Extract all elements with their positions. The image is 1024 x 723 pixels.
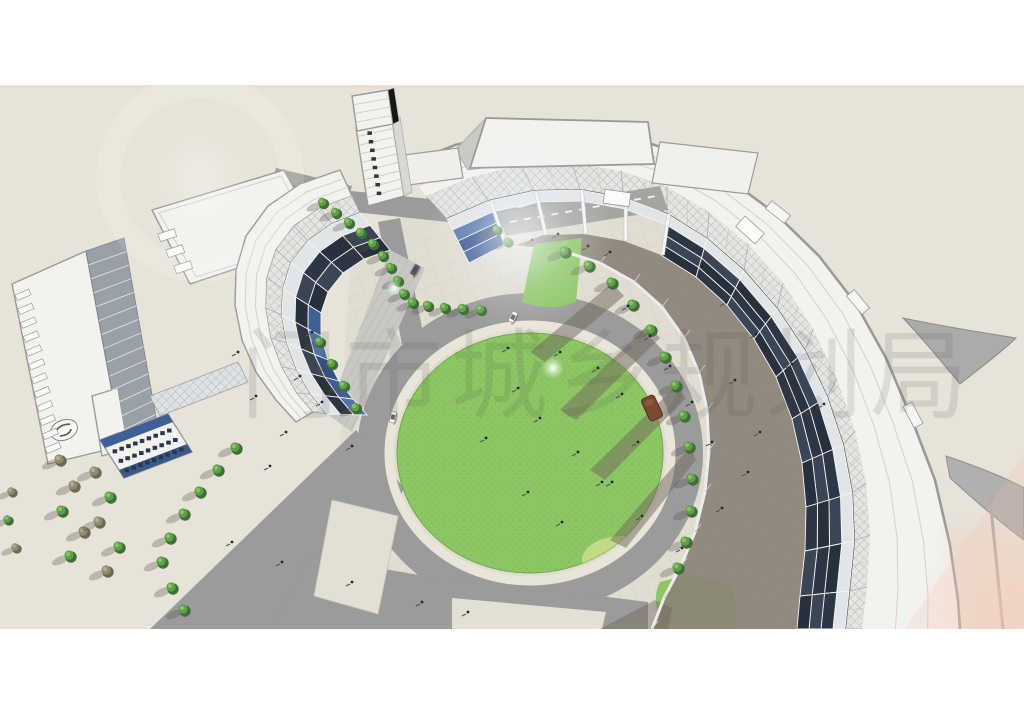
wing-window <box>113 449 118 453</box>
wing-window <box>153 446 158 450</box>
wing-window <box>125 468 130 472</box>
person-figure <box>577 451 580 454</box>
facade-window-cell <box>817 500 829 549</box>
wing-window <box>167 429 172 433</box>
tower-window <box>375 183 380 187</box>
wing-window <box>159 443 164 447</box>
wing-window <box>119 447 124 451</box>
tower-window <box>367 131 372 135</box>
tree-highlight <box>387 264 391 268</box>
tree-highlight <box>424 302 428 306</box>
aerial-render-canvas: 门市城乡规划局 <box>0 0 1024 723</box>
person-figure <box>467 611 470 614</box>
wing-window <box>119 459 124 463</box>
tree-highlight <box>103 567 107 571</box>
tree-highlight <box>369 240 373 244</box>
tree-highlight <box>56 456 60 460</box>
person-figure <box>627 305 630 308</box>
tree-highlight <box>629 301 633 305</box>
tree-highlight <box>180 606 184 610</box>
tree-highlight <box>682 538 686 542</box>
tree-highlight <box>441 304 445 308</box>
person-figure <box>269 465 272 468</box>
wing-window <box>179 448 184 452</box>
tree-highlight <box>58 507 62 511</box>
person-figure <box>351 581 354 584</box>
tree-highlight <box>115 543 119 547</box>
tower-window <box>377 192 382 196</box>
wing-window <box>165 453 170 457</box>
tree-highlight <box>674 564 678 568</box>
tree-highlight <box>12 544 16 548</box>
architectural-render-page: 门市城乡规划局 <box>0 0 1024 723</box>
wing-window <box>172 450 177 454</box>
tree-highlight <box>106 493 110 497</box>
tower-window <box>374 174 379 178</box>
tower-window <box>370 149 375 153</box>
facade-window-cell <box>805 504 818 552</box>
tower-window <box>369 140 374 144</box>
person-figure <box>711 441 714 444</box>
tree-highlight <box>91 468 95 472</box>
tree-highlight <box>66 552 70 556</box>
wing-window <box>140 439 145 443</box>
wing-window <box>145 461 150 465</box>
person-figure <box>421 601 424 604</box>
tower-window <box>373 166 378 170</box>
tree-highlight <box>8 488 12 492</box>
person-figure <box>637 441 640 444</box>
wing-window <box>160 431 165 435</box>
wing-window <box>139 451 144 455</box>
person-figure <box>747 471 750 474</box>
tree-highlight <box>158 558 162 562</box>
person-figure <box>237 351 240 354</box>
wing-window <box>173 438 178 442</box>
facade-window-cell <box>829 497 842 547</box>
person-figure <box>601 481 604 484</box>
tree-highlight <box>4 516 8 520</box>
tree-highlight <box>95 518 99 522</box>
person-figure <box>681 547 684 550</box>
tree-highlight <box>232 444 236 448</box>
tower-window <box>371 157 376 161</box>
tree-highlight <box>357 229 361 233</box>
tree-highlight <box>180 510 184 514</box>
top-margin <box>0 0 1024 85</box>
tree-highlight <box>332 209 336 213</box>
tree-highlight <box>166 534 170 538</box>
wing-window <box>126 444 130 448</box>
facade-window-cell <box>841 493 855 544</box>
wing-window <box>138 463 143 467</box>
wing-window <box>152 458 157 462</box>
person-figure <box>561 521 564 524</box>
tree-highlight <box>409 299 413 303</box>
person-figure <box>527 491 530 494</box>
tree-highlight <box>685 443 689 447</box>
wing-window <box>147 436 152 440</box>
tree-highlight <box>214 466 218 470</box>
wing-window <box>153 434 158 438</box>
wing-window <box>159 455 164 459</box>
tree-highlight <box>168 584 172 588</box>
tree-highlight <box>345 219 349 223</box>
tree-highlight <box>379 252 383 256</box>
tree-highlight <box>196 488 200 492</box>
tree-highlight <box>687 507 691 511</box>
tree-highlight <box>608 279 612 283</box>
wing-window <box>133 442 138 446</box>
wing-window <box>166 441 171 445</box>
wing-window <box>146 448 151 452</box>
watermark-text: 门市城乡规划局 <box>240 320 975 434</box>
wing-window <box>132 454 137 458</box>
wing-window <box>125 456 130 460</box>
person-figure <box>641 515 644 518</box>
tree-highlight <box>688 475 692 479</box>
tree-highlight <box>70 482 74 486</box>
person-figure <box>281 561 284 564</box>
wing-window <box>131 466 136 470</box>
tree-highlight <box>319 199 323 203</box>
person-figure <box>485 437 488 440</box>
bottom-margin <box>0 629 1024 723</box>
person-figure <box>611 481 614 484</box>
person-figure <box>721 507 724 510</box>
person-figure <box>231 541 234 544</box>
person-figure <box>725 301 728 304</box>
person-figure <box>351 445 354 448</box>
